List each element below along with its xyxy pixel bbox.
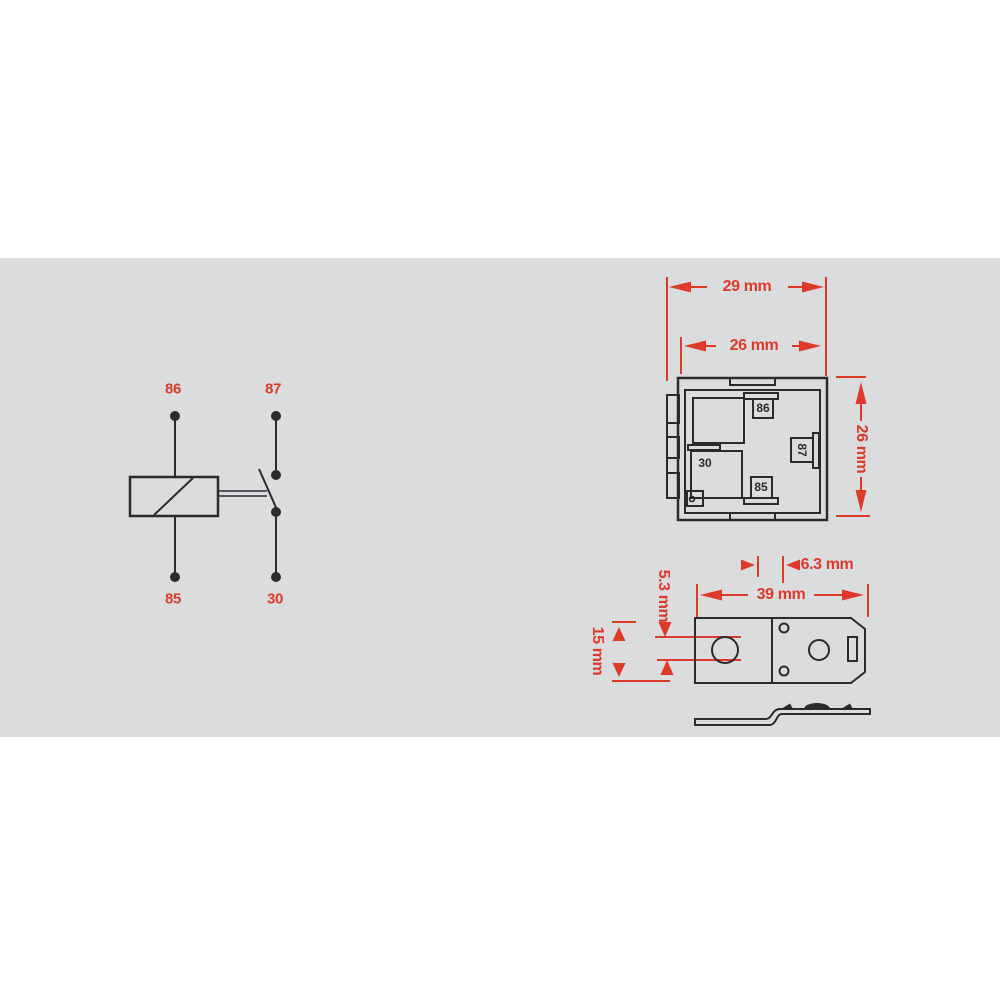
- fixed-contact-dot: [271, 470, 281, 480]
- movable-contact-dot: [271, 507, 281, 517]
- relay-spec-diagram: 86 87 85 30 29 mm 26 mm 26 mm 86 30 85 8…: [0, 0, 1000, 1000]
- diagram-line-art: [0, 0, 1000, 1000]
- relay-circuit-schematic: [130, 411, 281, 582]
- dim-6-3mm-label: 6.3 mm: [801, 557, 854, 573]
- dim-29mm-label: 29 mm: [723, 279, 772, 295]
- terminal-30-label: 30: [698, 457, 711, 469]
- rivet-dome: [804, 703, 830, 709]
- dim-26mm-height-label: 26 mm: [853, 425, 869, 474]
- terminal-85-label: 85: [754, 481, 767, 493]
- dim-26mm-width-label: 26 mm: [730, 338, 779, 354]
- dim-15mm-label: 15 mm: [589, 627, 605, 676]
- mounting-bracket-side-view: [695, 703, 870, 725]
- slot: [848, 637, 857, 661]
- schematic-pin-85-label: 85: [165, 592, 181, 607]
- schematic-pin-87-label: 87: [265, 382, 281, 397]
- dimension-5-3mm: [655, 622, 741, 675]
- dim-39mm-label: 39 mm: [757, 587, 806, 603]
- terminal-86-label: 86: [756, 402, 769, 414]
- terminal-87-label: 87: [796, 443, 808, 456]
- dimension-6-3mm: [741, 556, 800, 583]
- mounting-bracket-top-view: [695, 618, 865, 683]
- schematic-pin-86-label: 86: [165, 382, 181, 397]
- dimension-15mm: [612, 622, 670, 681]
- schematic-pin-30-label: 30: [267, 592, 283, 607]
- dim-5-3mm-label: 5.3 mm: [655, 570, 671, 623]
